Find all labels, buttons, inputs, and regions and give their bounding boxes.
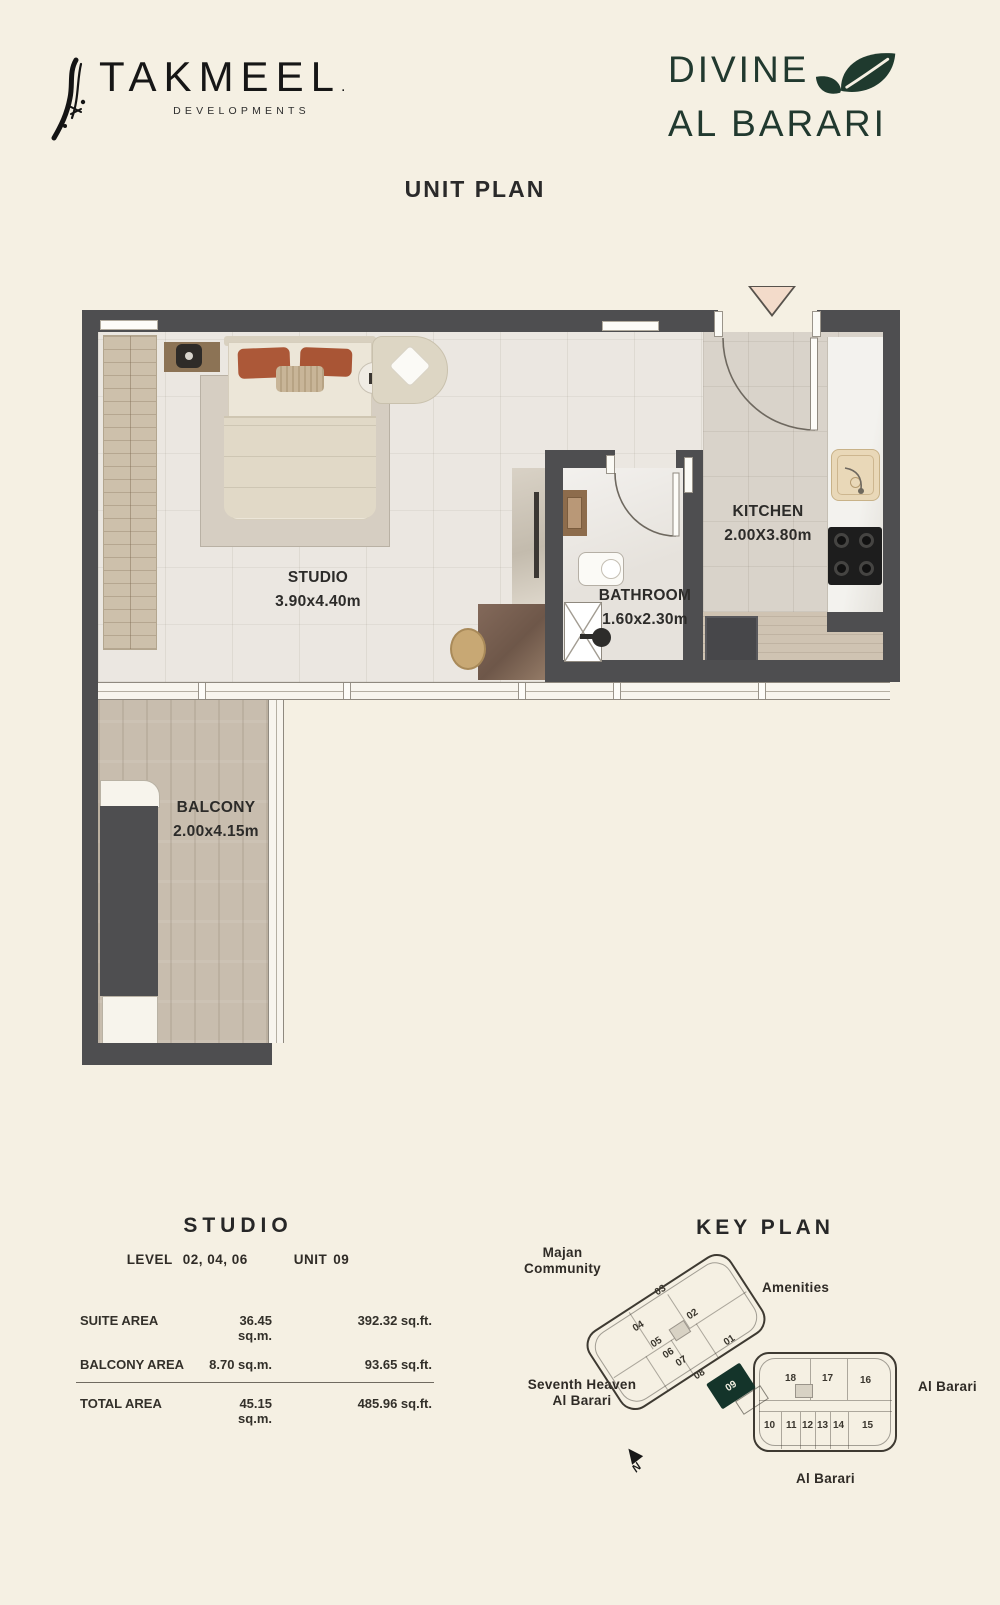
elevator-core [795, 1384, 813, 1398]
divider [781, 1412, 782, 1449]
area-table: SUITE AREA 36.45 sq.m. 392.32 sq.ft. BAL… [80, 1306, 432, 1433]
studio-dims: 3.90x4.40m [238, 590, 398, 614]
window-top-1 [100, 320, 158, 330]
divider [847, 1359, 848, 1400]
amenities-label: Amenities [762, 1280, 829, 1296]
table-divider [76, 1382, 434, 1383]
unit-10: 10 [764, 1420, 775, 1431]
studio-name: STUDIO [238, 566, 398, 590]
mullion [613, 683, 621, 699]
divider [696, 1323, 719, 1357]
north-label: N [630, 1461, 644, 1475]
wardrobe [103, 335, 157, 650]
mullion [198, 683, 206, 699]
tv-screen [534, 492, 539, 578]
entrance-marker-icon [748, 286, 796, 318]
bathroom-name: BATHROOM [565, 584, 725, 608]
balcony-bench-bottom [102, 996, 158, 1044]
wall-bottom [545, 660, 900, 682]
level-label: LEVEL [127, 1252, 173, 1267]
bathroom-dims: 1.60x2.30m [565, 608, 725, 632]
bed-lumbar-pillow [276, 366, 324, 392]
unit-14: 14 [833, 1420, 844, 1431]
total-area-label: TOTAL AREA [80, 1396, 204, 1411]
unit-plan-page: TAKMEEL. DEVELOPMENTS DIVINE AL BARARI U… [0, 0, 1000, 1605]
corridor-line [759, 1400, 892, 1401]
unit-value: 09 [333, 1252, 349, 1267]
glass-line [98, 691, 890, 692]
table-row-suite: SUITE AREA 36.45 sq.m. 392.32 sq.ft. [80, 1306, 432, 1350]
unit-15: 15 [862, 1420, 873, 1431]
lounge-chair [372, 336, 448, 404]
majan-line1: Majan [500, 1245, 625, 1261]
total-area-sqm: 45.15 sq.m. [204, 1396, 272, 1426]
divider [830, 1412, 831, 1449]
burner [859, 561, 874, 576]
lounge-pillow [389, 345, 431, 387]
balcony-name: BALCONY [136, 796, 296, 820]
suite-area-label: SUITE AREA [80, 1313, 204, 1328]
unit-17: 17 [822, 1373, 833, 1384]
entrance-triangle [751, 287, 793, 314]
unit-11: 11 [786, 1420, 797, 1431]
balcony-area-label: BALCONY AREA [80, 1357, 204, 1372]
kitchen-dims: 2.00X3.80m [688, 524, 848, 548]
bathroom-label: BATHROOM 1.60x2.30m [565, 584, 725, 632]
majan-line2: Community [500, 1261, 625, 1277]
table-lamp [176, 344, 202, 368]
balcony-label: BALCONY 2.00x4.15m [136, 796, 296, 844]
balcony-glass-rail [268, 700, 284, 1043]
desk [478, 604, 545, 680]
key-plan-building-b: 18 17 16 10 11 12 13 14 15 [753, 1352, 897, 1452]
key-plan-heading: KEY PLAN [645, 1216, 885, 1240]
majan-community-label: Majan Community [500, 1245, 625, 1277]
shower-arm [580, 634, 594, 639]
unit-type-heading: STUDIO [78, 1214, 398, 1238]
divider [848, 1412, 849, 1449]
total-area-sqft: 485.96 sq.ft. [272, 1396, 432, 1411]
balcony-dims: 2.00x4.15m [136, 820, 296, 844]
toilet-bowl [601, 559, 621, 579]
wall-kitchen-stub [827, 612, 883, 632]
unit-label: UNIT [294, 1252, 328, 1267]
mullion [343, 683, 351, 699]
level-values: 02, 04, 06 [183, 1252, 248, 1267]
divider [645, 1356, 668, 1390]
mullion [758, 683, 766, 699]
mullion [518, 683, 526, 699]
unit-12: 12 [802, 1420, 813, 1431]
desk-chair [450, 628, 486, 670]
al-barari-right-label: Al Barari [918, 1379, 977, 1395]
balcony-area-sqm: 8.70 sq.m. [204, 1357, 272, 1372]
divider [815, 1412, 816, 1449]
bed-blanket [224, 416, 376, 518]
floor-plan: STUDIO 3.90x4.40m BATHROOM 1.60x2.30m KI… [0, 0, 1000, 1100]
suite-area-sqm: 36.45 sq.m. [204, 1313, 272, 1343]
burner [834, 561, 849, 576]
unit-18: 18 [785, 1373, 796, 1384]
balcony-area-sqft: 93.65 sq.ft. [272, 1357, 432, 1372]
divider [800, 1412, 801, 1449]
elevator-core [669, 1320, 692, 1342]
divider [810, 1359, 811, 1400]
kitchen-label: KITCHEN 2.00X3.80m [688, 500, 848, 548]
kitchen-name: KITCHEN [688, 500, 848, 524]
unit-16: 16 [860, 1375, 871, 1386]
table-row-total: TOTAL AREA 45.15 sq.m. 485.96 sq.ft. [80, 1389, 432, 1433]
suite-area-sqft: 392.32 sq.ft. [272, 1313, 432, 1328]
toilet [578, 552, 624, 586]
window-wall [98, 682, 890, 700]
glass-line [276, 700, 277, 1043]
unit-09: 09 [723, 1378, 738, 1393]
unit-13: 13 [817, 1420, 828, 1431]
wall-left [82, 310, 98, 1065]
level-unit-row: LEVEL 02, 04, 06 UNIT 09 [78, 1252, 398, 1267]
corridor-line [759, 1411, 892, 1412]
wall-balcony-bottom [82, 1043, 272, 1065]
al-barari-bottom-label: Al Barari [796, 1471, 855, 1487]
lamp-dot [185, 352, 193, 360]
table-row-balcony: BALCONY AREA 8.70 sq.m. 93.65 sq.ft. [80, 1350, 432, 1379]
studio-label: STUDIO 3.90x4.40m [238, 566, 398, 614]
